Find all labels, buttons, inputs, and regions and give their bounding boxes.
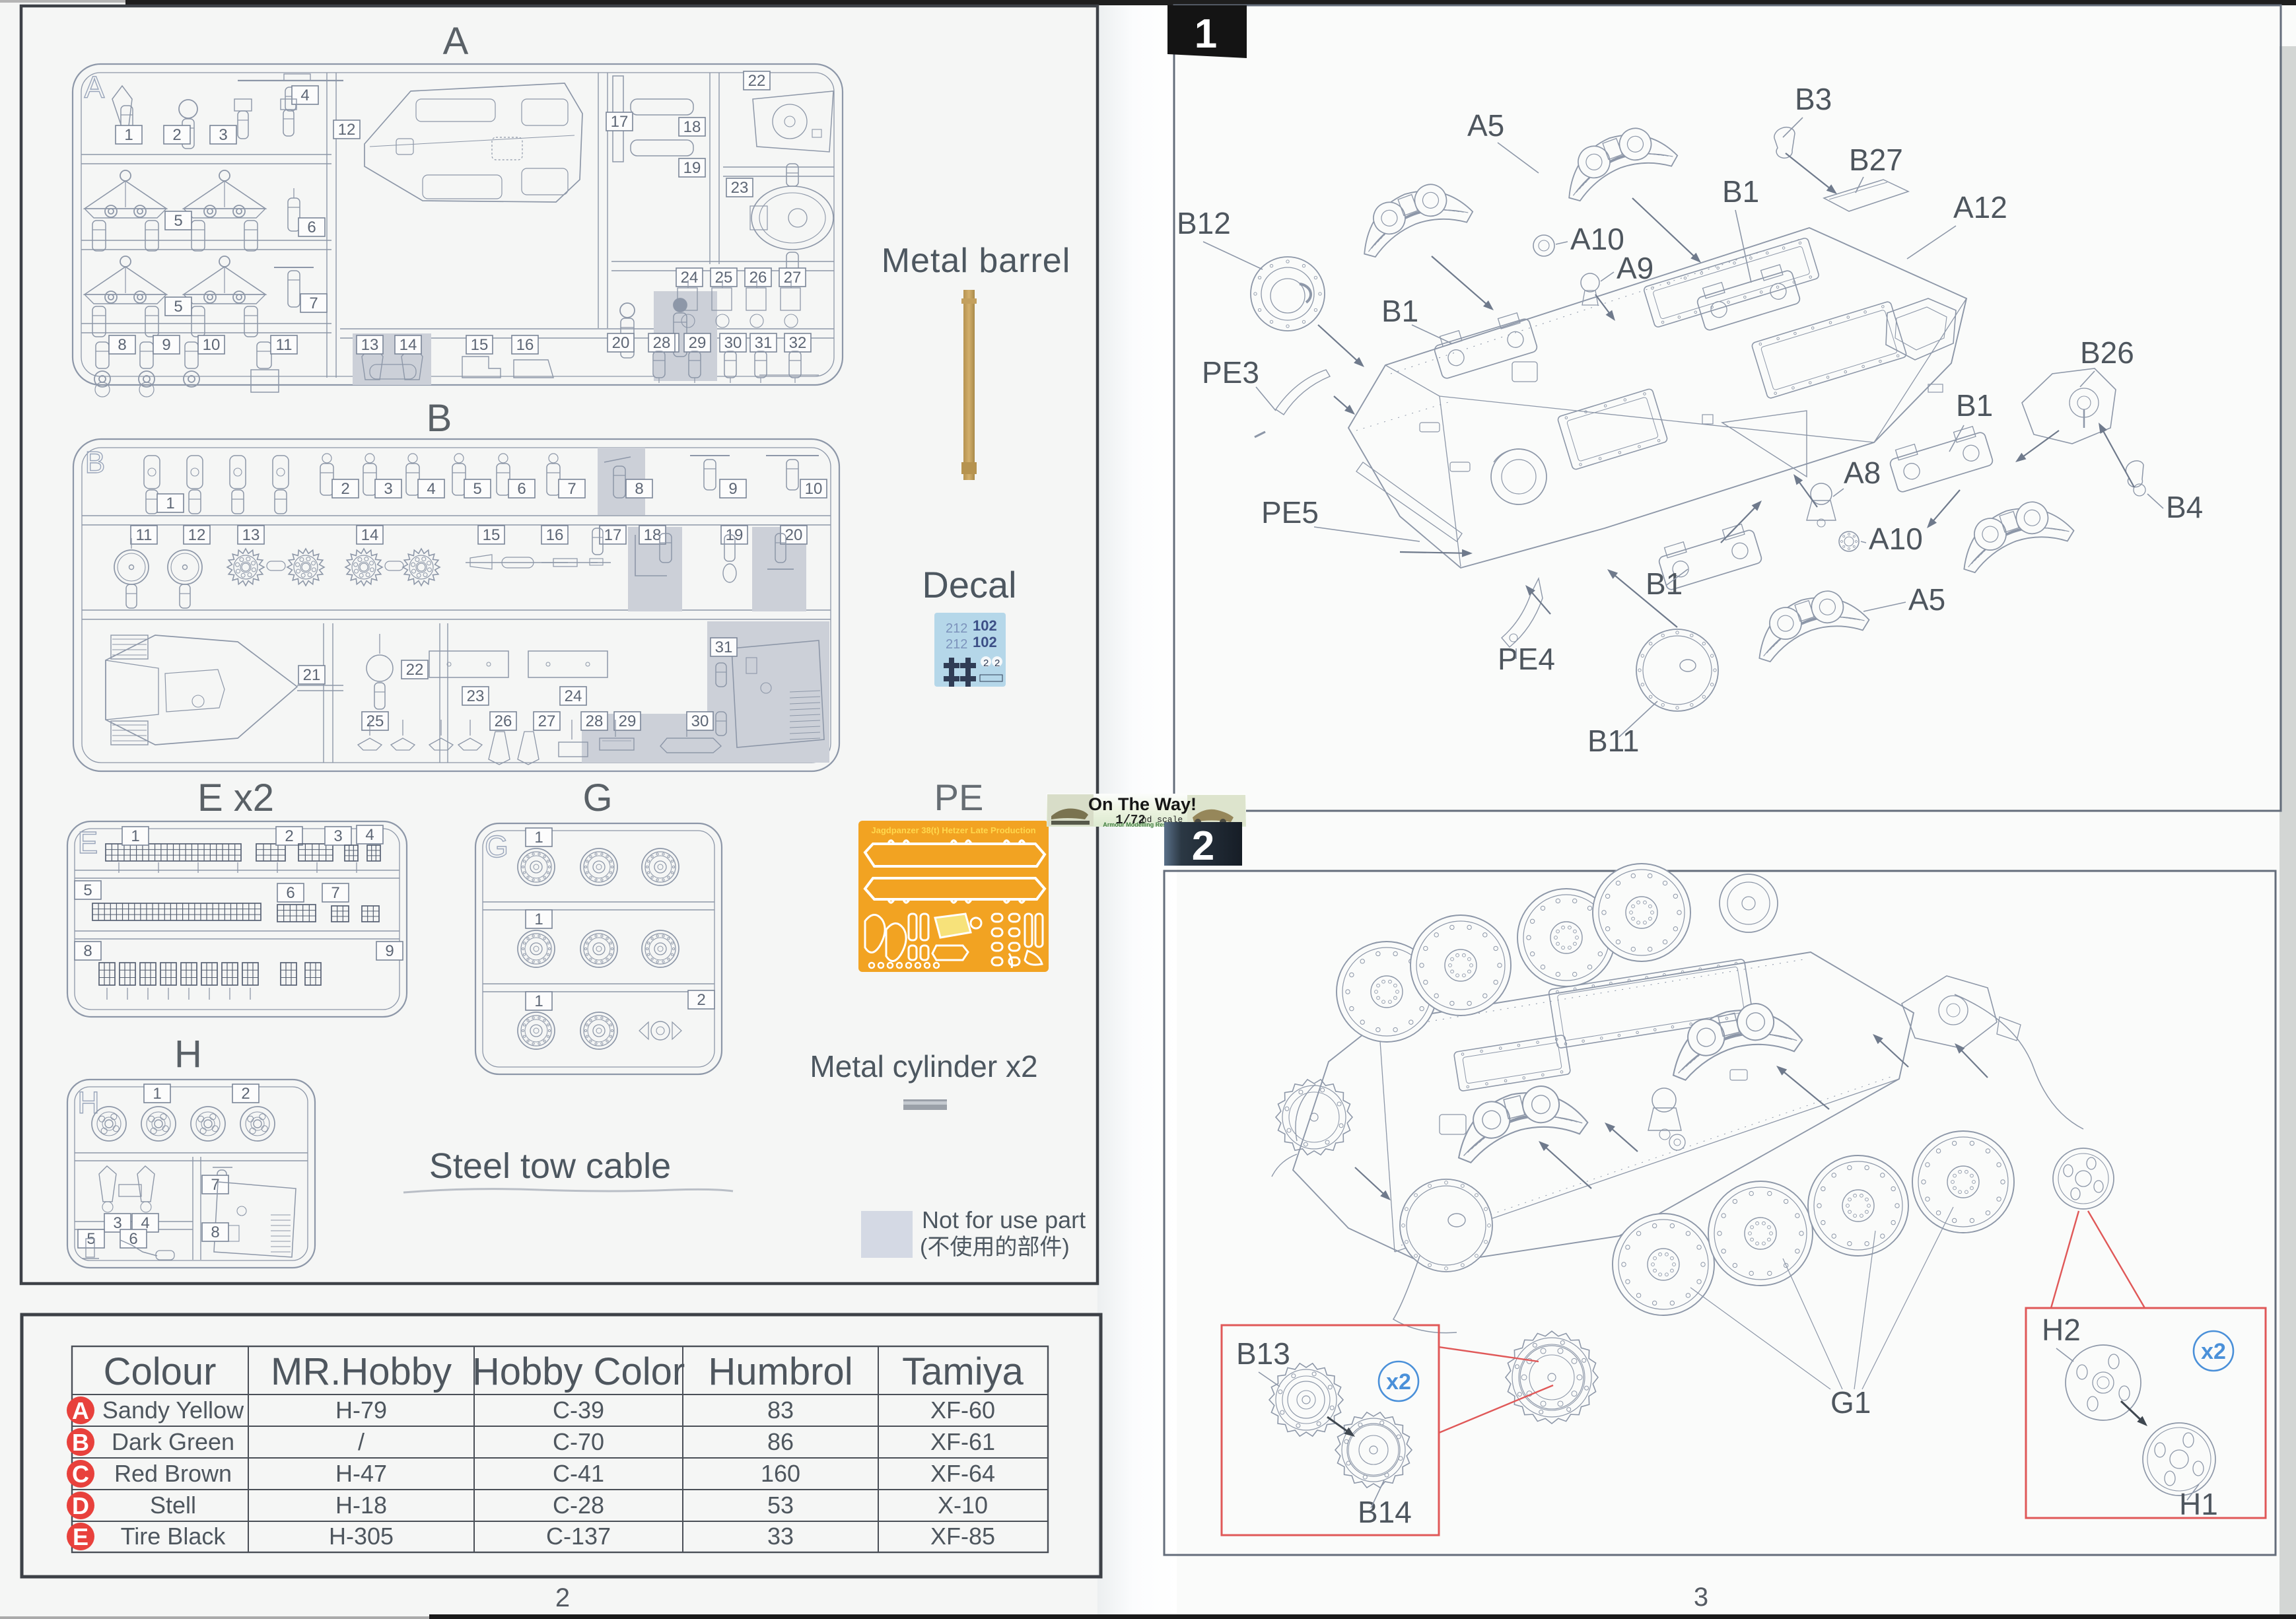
svg-text:4: 4 — [427, 480, 435, 498]
svg-text:B13: B13 — [1236, 1336, 1290, 1371]
svg-text:2: 2 — [341, 480, 349, 498]
svg-text:H: H — [77, 1085, 99, 1120]
svg-text:4: 4 — [300, 86, 309, 104]
svg-text:MR.Hobby: MR.Hobby — [271, 1350, 452, 1393]
svg-text:8: 8 — [118, 336, 126, 354]
svg-text:G: G — [485, 829, 508, 864]
svg-text:30: 30 — [724, 334, 742, 352]
svg-text:15: 15 — [483, 526, 501, 544]
svg-text:1: 1 — [1195, 11, 1217, 57]
svg-text:7: 7 — [331, 884, 339, 902]
svg-text:H: H — [174, 1033, 202, 1076]
svg-text:Red Brown: Red Brown — [114, 1460, 232, 1487]
svg-text:32: 32 — [789, 334, 807, 352]
svg-text:H-305: H-305 — [329, 1523, 394, 1550]
svg-text:9: 9 — [162, 336, 170, 354]
svg-text:19: 19 — [683, 159, 701, 177]
svg-text:Tire Black: Tire Black — [121, 1523, 226, 1550]
svg-text:23: 23 — [467, 687, 485, 705]
svg-text:A5: A5 — [1908, 582, 1945, 617]
svg-text:Jagdpanzer 38(t) Hetzer Late P: Jagdpanzer 38(t) Hetzer Late Production — [871, 825, 1035, 835]
svg-text:1: 1 — [166, 495, 174, 512]
svg-text:C: C — [72, 1461, 89, 1488]
svg-text:Metal barrel: Metal barrel — [882, 242, 1071, 280]
svg-text:Steel tow cable: Steel tow cable — [429, 1146, 671, 1186]
svg-text:/: / — [358, 1428, 365, 1455]
svg-text:B: B — [85, 445, 106, 479]
svg-text:B: B — [427, 397, 452, 440]
svg-text:22: 22 — [748, 72, 766, 90]
svg-text:33: 33 — [767, 1523, 794, 1550]
svg-text:5: 5 — [174, 212, 182, 230]
svg-text:x2: x2 — [1386, 1369, 1411, 1395]
svg-text:31: 31 — [715, 638, 733, 656]
svg-text:C-28: C-28 — [553, 1492, 604, 1519]
svg-text:28: 28 — [586, 712, 604, 730]
svg-text:B3: B3 — [1795, 82, 1832, 116]
svg-text:2: 2 — [555, 1583, 570, 1612]
svg-text:14: 14 — [400, 336, 417, 354]
svg-text:PE: PE — [934, 776, 984, 818]
svg-text:12: 12 — [188, 526, 206, 544]
svg-text:16: 16 — [546, 526, 564, 544]
svg-text:B1: B1 — [1722, 174, 1759, 209]
svg-text:1: 1 — [534, 911, 543, 928]
svg-text:H1: H1 — [2179, 1487, 2218, 1521]
svg-text:2: 2 — [697, 991, 705, 1009]
svg-text:5: 5 — [473, 480, 481, 498]
svg-text:26: 26 — [749, 269, 767, 287]
svg-text:(不使用的部件): (不使用的部件) — [920, 1235, 1070, 1260]
svg-text:A12: A12 — [1953, 190, 2007, 224]
svg-text:1: 1 — [534, 992, 543, 1010]
svg-text:Humbrol: Humbrol — [708, 1350, 852, 1393]
svg-text:28: 28 — [653, 334, 671, 352]
svg-text:x2: x2 — [2201, 1339, 2226, 1364]
svg-text:3: 3 — [384, 480, 392, 498]
svg-text:7: 7 — [567, 480, 576, 498]
svg-text:B11: B11 — [1587, 724, 1639, 758]
svg-text:30: 30 — [691, 712, 709, 730]
svg-text:XF-60: XF-60 — [930, 1396, 995, 1424]
svg-text:23: 23 — [731, 179, 749, 197]
svg-text:9: 9 — [385, 942, 394, 960]
svg-text:B1: B1 — [1646, 567, 1683, 601]
svg-text:25: 25 — [715, 269, 733, 287]
svg-text:E: E — [73, 1523, 88, 1550]
svg-text:20: 20 — [612, 334, 630, 352]
svg-text:102: 102 — [973, 634, 997, 650]
svg-text:2: 2 — [172, 126, 181, 144]
svg-text:5: 5 — [174, 298, 182, 316]
svg-text:22: 22 — [406, 661, 424, 679]
svg-text:B12: B12 — [1177, 206, 1231, 240]
svg-text:B27: B27 — [1849, 143, 1903, 177]
svg-text:2: 2 — [241, 1085, 250, 1103]
svg-text:6: 6 — [129, 1230, 137, 1248]
svg-text:D: D — [72, 1492, 89, 1519]
svg-text:Tamiya: Tamiya — [902, 1350, 1024, 1393]
svg-text:3: 3 — [1694, 1583, 1708, 1612]
svg-text:C-137: C-137 — [546, 1523, 611, 1550]
svg-text:PE4: PE4 — [1498, 642, 1555, 676]
svg-text:H-79: H-79 — [335, 1396, 387, 1424]
svg-text:21: 21 — [303, 666, 321, 684]
svg-text:102: 102 — [973, 617, 997, 634]
svg-text:A10: A10 — [1869, 522, 1923, 556]
svg-text:10: 10 — [203, 336, 221, 354]
svg-text:20: 20 — [785, 526, 803, 544]
svg-text:B26: B26 — [2080, 335, 2134, 370]
svg-text:G1: G1 — [1830, 1385, 1871, 1420]
svg-text:4: 4 — [365, 826, 374, 844]
svg-text:A9: A9 — [1617, 251, 1653, 285]
svg-text:9: 9 — [728, 480, 737, 498]
svg-text:29: 29 — [619, 712, 637, 730]
svg-text:XF-64: XF-64 — [930, 1460, 995, 1487]
svg-text:27: 27 — [784, 269, 802, 287]
svg-text:PE3: PE3 — [1202, 355, 1259, 390]
svg-text:11: 11 — [276, 336, 293, 354]
svg-text:On The Way!: On The Way! — [1088, 794, 1197, 814]
svg-text:6: 6 — [517, 480, 526, 498]
svg-text:53: 53 — [767, 1492, 794, 1519]
svg-text:14: 14 — [361, 526, 379, 544]
svg-text:26: 26 — [495, 712, 512, 730]
svg-text:13: 13 — [361, 336, 379, 354]
svg-text:6: 6 — [286, 884, 295, 902]
svg-text:E x2: E x2 — [197, 776, 274, 819]
svg-text:Dark Green: Dark Green — [112, 1428, 234, 1455]
svg-text:24: 24 — [565, 687, 582, 705]
svg-text:86: 86 — [767, 1428, 794, 1455]
svg-text:12: 12 — [338, 121, 356, 139]
svg-text:11: 11 — [136, 526, 153, 544]
svg-text:2: 2 — [983, 658, 989, 669]
svg-text:Hobby Color: Hobby Color — [472, 1350, 685, 1393]
svg-text:H-18: H-18 — [335, 1492, 387, 1519]
svg-text:C-39: C-39 — [553, 1396, 604, 1424]
svg-text:C-41: C-41 — [553, 1460, 604, 1487]
svg-text:1: 1 — [534, 829, 543, 846]
svg-text:1: 1 — [153, 1085, 161, 1103]
svg-text:2: 2 — [285, 827, 293, 845]
svg-text:2: 2 — [1192, 823, 1214, 869]
svg-text:212: 212 — [946, 637, 967, 652]
svg-text:G: G — [582, 776, 612, 819]
svg-text:A: A — [72, 1397, 89, 1424]
svg-text:7: 7 — [211, 1176, 219, 1194]
svg-text:8: 8 — [211, 1223, 219, 1241]
svg-text:E: E — [78, 825, 98, 860]
svg-text:B: B — [72, 1429, 89, 1456]
svg-text:10: 10 — [805, 480, 823, 498]
svg-text:13: 13 — [242, 526, 260, 544]
svg-text:17: 17 — [611, 113, 629, 131]
svg-text:7: 7 — [309, 294, 318, 312]
svg-text:Sandy Yellow: Sandy Yellow — [102, 1396, 244, 1424]
svg-text:A8: A8 — [1844, 456, 1881, 490]
svg-text:5: 5 — [83, 881, 92, 899]
svg-text:A5: A5 — [1467, 108, 1504, 143]
svg-text:B4: B4 — [2166, 490, 2203, 524]
svg-text:160: 160 — [761, 1460, 800, 1487]
svg-text:XF-85: XF-85 — [930, 1523, 995, 1550]
svg-text:B1: B1 — [1956, 388, 1993, 423]
svg-text:25: 25 — [366, 712, 384, 730]
svg-text:Decal: Decal — [922, 564, 1016, 605]
svg-text:3: 3 — [333, 827, 342, 845]
svg-text:8: 8 — [635, 480, 643, 498]
svg-text:H2: H2 — [2042, 1313, 2081, 1347]
svg-text:A: A — [443, 20, 469, 63]
svg-text:17: 17 — [604, 526, 622, 544]
svg-text:C-70: C-70 — [553, 1428, 604, 1455]
svg-text:Stell: Stell — [150, 1492, 196, 1519]
svg-text:X-10: X-10 — [938, 1492, 988, 1519]
svg-text:2: 2 — [994, 658, 1000, 669]
svg-text:212: 212 — [946, 621, 967, 636]
svg-text:Metal cylinder x2: Metal cylinder x2 — [810, 1049, 1037, 1084]
svg-text:Colour: Colour — [104, 1350, 217, 1393]
svg-text:29: 29 — [689, 334, 707, 352]
svg-text:16: 16 — [516, 336, 534, 354]
svg-text:27: 27 — [538, 712, 556, 730]
svg-text:6: 6 — [307, 219, 316, 236]
svg-text:83: 83 — [767, 1396, 794, 1424]
svg-text:PE5: PE5 — [1261, 495, 1319, 530]
svg-text:3: 3 — [219, 126, 227, 144]
svg-text:8: 8 — [83, 942, 92, 960]
svg-text:H-47: H-47 — [335, 1460, 387, 1487]
svg-text:1: 1 — [124, 126, 133, 144]
svg-text:B1: B1 — [1381, 294, 1418, 328]
svg-text:Not for use part: Not for use part — [922, 1206, 1086, 1233]
svg-text:18: 18 — [683, 118, 701, 136]
svg-text:A: A — [85, 70, 105, 104]
svg-text:24: 24 — [681, 269, 699, 287]
svg-text:XF-61: XF-61 — [930, 1428, 995, 1455]
svg-text:B14: B14 — [1358, 1495, 1412, 1529]
svg-text:15: 15 — [471, 336, 489, 354]
svg-text:1: 1 — [131, 827, 139, 845]
svg-text:31: 31 — [755, 334, 773, 352]
svg-text:18: 18 — [644, 526, 662, 544]
